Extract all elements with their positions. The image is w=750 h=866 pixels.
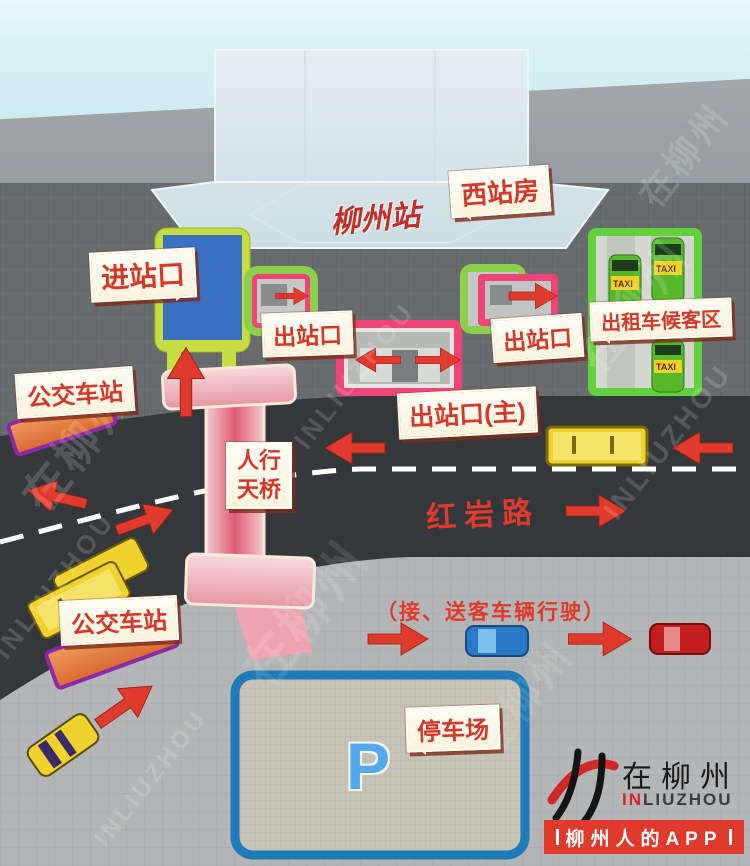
- pickup-note: （接、送客车辆行驶）: [376, 596, 606, 626]
- label-entrance: 进站口: [89, 247, 197, 302]
- arrow-pickup-1: [368, 623, 428, 655]
- label-parking: 停车场: [405, 704, 501, 752]
- logo-banner: 柳州人的APP: [544, 820, 744, 854]
- taxi-roof-text: TAXI: [656, 362, 676, 372]
- label-taxi-area: 出租车候客区: [589, 298, 732, 342]
- arrow-plaza: [88, 672, 162, 739]
- taxi-cab: TAXI: [652, 340, 684, 392]
- label-exit-2: 出站口: [491, 313, 585, 363]
- logo-en-prefix: IN: [622, 790, 643, 809]
- parking-symbol: P: [346, 728, 390, 804]
- station-name: 柳州站: [328, 190, 421, 242]
- road-name: 红岩路: [425, 487, 541, 537]
- label-exit-1: 出站口: [261, 310, 353, 357]
- arrow-pickup-2: [569, 622, 632, 656]
- label-bus-station-north: 公交车站: [15, 366, 136, 419]
- footbridge-line-2: 天桥: [237, 476, 281, 505]
- logo-en-suffix: LIUZHOU: [643, 790, 733, 809]
- station-map: TAXI TAXI TAXI: [0, 0, 750, 866]
- label-west-building: 西站房: [448, 165, 551, 219]
- taxi-roof-text: TAXI: [613, 279, 633, 289]
- red-car: [650, 624, 710, 654]
- label-bus-station-south: 公交车站: [59, 595, 179, 646]
- label-exit-main: 出站口(主): [397, 386, 538, 439]
- label-footbridge: 人行 天桥: [226, 442, 292, 509]
- taxi-bottom-left: [25, 711, 102, 779]
- blue-car: [466, 626, 528, 656]
- logo-brand-en: INLIUZHOU: [622, 790, 733, 810]
- taxi-cab: TAXI: [652, 238, 684, 302]
- logo-mark: [544, 742, 622, 826]
- footbridge-line-1: 人行: [237, 447, 281, 476]
- taxi-roof-text: TAXI: [656, 264, 676, 274]
- bus-on-road: [547, 427, 647, 465]
